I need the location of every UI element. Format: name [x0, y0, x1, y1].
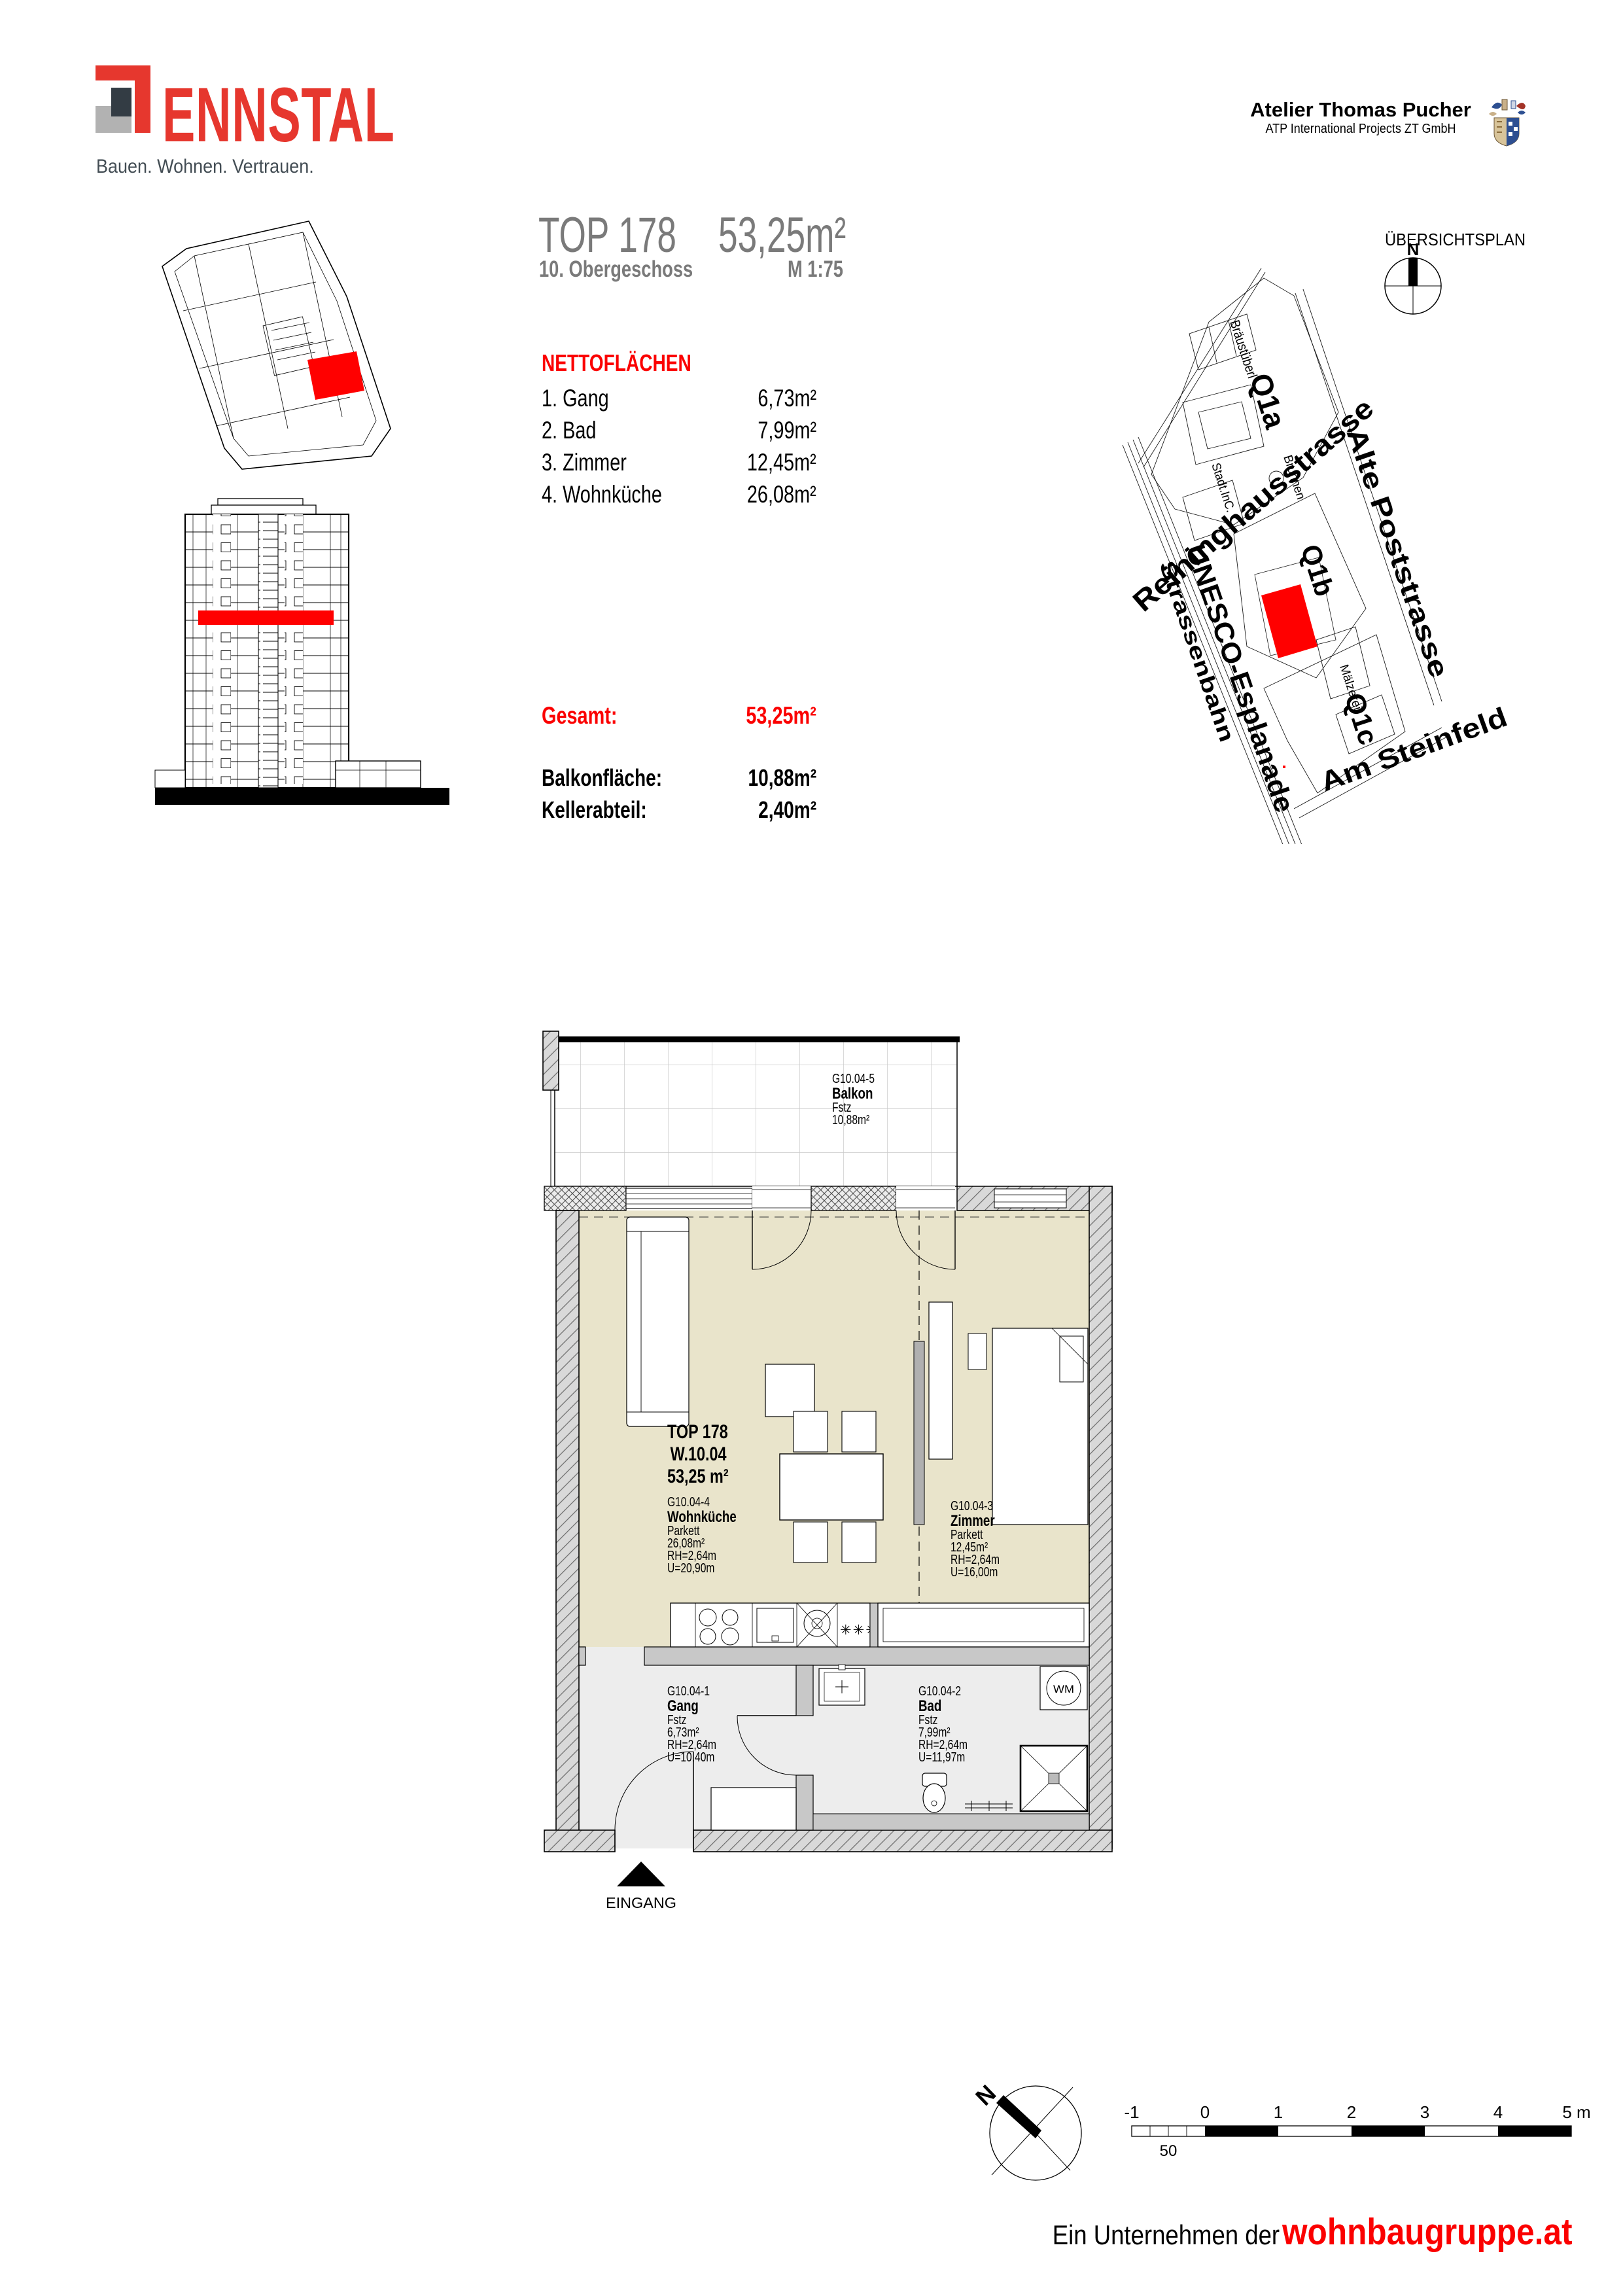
netto-row: 1. Gang 6,73m² [542, 385, 816, 417]
site-plan-drawing: ÜBERSICHTSPLAN N Reininghausstrasse Stra… [1099, 216, 1622, 844]
netto-row: 4. Wohnküche 26,08m² [542, 481, 816, 513]
netto-row-value: 12,45m² [747, 449, 816, 476]
netto-heading: NETTOFLÄCHEN [542, 349, 691, 377]
site-plan-heading: ÜBERSICHTSPLAN [1385, 230, 1526, 249]
netto-row-value: 7,99m² [758, 417, 816, 444]
coffee-table-icon [765, 1364, 814, 1417]
exterior-wall-right [1089, 1186, 1112, 1848]
balcony-deck [555, 1042, 957, 1186]
place-label-braeustueberl: Bräustüberl [1227, 318, 1259, 380]
sofa-icon [627, 1217, 689, 1426]
page-title-floor: 10. Obergeschoss [539, 256, 693, 283]
scale-tick-label: 5 m [1562, 2102, 1590, 2122]
place-label-stadt-inc: Stadt.InC. [1208, 461, 1237, 514]
scale-bar: -1 0 1 2 3 4 5 m 50 [1112, 2084, 1622, 2169]
page-title-scale: M 1:75 [788, 256, 843, 283]
hall-closet-icon [711, 1788, 796, 1830]
footer: Ein Unternehmen der wohnbaugruppe.at [1052, 2210, 1572, 2253]
unit-label: TOP 178 W.10.04 53,25 m² [667, 1421, 729, 1488]
scale-tick-label: 4 [1493, 2102, 1503, 2122]
scale-tick-label: 2 [1347, 2102, 1356, 2122]
scale-tick-label: -1 [1124, 2102, 1139, 2122]
block-label-q1a: Q1a [1243, 369, 1293, 433]
summary-row-label: Balkonfläche: [542, 764, 662, 792]
washing-machine-icon: WM [1040, 1667, 1087, 1710]
entrance-arrow-icon [617, 1862, 665, 1886]
page-title-unit: TOP 178 [538, 207, 676, 264]
netto-row: 2. Bad 7,99m² [542, 417, 816, 449]
floorplan-document-page: ENNSTAL Bauen. Wohnen. Vertrauen. Atelie… [0, 0, 1623, 2296]
scale-tick-label: 0 [1200, 2102, 1210, 2122]
ennstal-logo-icon [96, 65, 153, 141]
room-label-balkon: G10.04-5 Balkon Fstz 10,88m² [832, 1073, 875, 1127]
architect-name: Atelier Thomas Pucher [1243, 98, 1478, 122]
key-plan-highlighted-unit [307, 351, 364, 400]
room-label-gang: G10.04-1 Gang Fstz 6,73m² RH=2,64m U=10,… [667, 1686, 716, 1764]
scale-tick-label: 3 [1420, 2102, 1429, 2122]
entrance-label: EINGANG [606, 1894, 676, 1911]
exterior-wall-left [556, 1210, 579, 1848]
washbasin-icon [819, 1665, 865, 1705]
summary-table: Balkonfläche: 10,88m² Kellerabteil: 2,40… [542, 764, 816, 828]
section-highlighted-floor [198, 610, 334, 625]
room-label-zimmer: G10.04-3 Zimmer Parkett 12,45m² RH=2,64m… [951, 1500, 1000, 1579]
site-plan-highlighted-building [1261, 584, 1318, 658]
netto-row-label: 4. Wohnküche [542, 481, 662, 508]
summary-row-value: 2,40m² [758, 796, 816, 824]
exterior-wall-bottom [693, 1830, 1112, 1852]
summary-row: Balkonfläche: 10,88m² [542, 764, 816, 796]
gesamt-label: Gesamt: [542, 702, 617, 730]
sliding-panel [914, 1341, 924, 1525]
netto-table: 1. Gang 6,73m² 2. Bad 7,99m² 3. Zimmer 1… [542, 385, 816, 513]
key-plan-drawing [134, 213, 442, 474]
architect-crest-icon [1485, 96, 1528, 150]
room-label-bad: G10.04-2 Bad Fstz 7,99m² RH=2,64m U=11,9… [918, 1686, 968, 1764]
netto-row-label: 3. Zimmer [542, 449, 627, 476]
wm-label: WM [1053, 1683, 1074, 1695]
summary-row-value: 10,88m² [748, 764, 816, 792]
section-ground-line [155, 788, 449, 805]
building-section-drawing [144, 484, 458, 824]
gesamt-row: Gesamt: 53,25m² [542, 702, 816, 734]
summary-row-label: Kellerabteil: [542, 796, 647, 824]
street-label-alte-poststrasse: Alte Poststrasse [1340, 424, 1455, 682]
scale-tick-label: 1 [1274, 2102, 1283, 2122]
logo-dark-square [111, 88, 131, 116]
footer-brand-link[interactable]: wohnbaugruppe.at [1282, 2211, 1572, 2253]
interior-wall-horizontal [644, 1647, 1089, 1665]
room-label-wohnkueche: G10.04-4 Wohnküche Parkett 26,08m² RH=2,… [667, 1496, 737, 1575]
architect-firm: ATP International Projects ZT GmbH [1255, 122, 1467, 137]
plan-north-compass-icon: N [973, 2069, 1117, 2213]
netto-row-label: 2. Bad [542, 417, 596, 444]
shower-icon [1021, 1746, 1087, 1811]
floor-plan-drawing: ✳✳✳ [536, 1021, 1125, 1937]
footer-prefix: Ein Unternehmen der [1052, 2219, 1279, 2250]
summary-row: Kellerabteil: 2,40m² [542, 796, 816, 828]
brand-tagline: Bauen. Wohnen. Vertrauen. [96, 156, 314, 178]
interior-wall-vertical [796, 1775, 813, 1830]
netto-row: 3. Zimmer 12,45m² [542, 449, 816, 481]
floor-plan: ✳✳✳ [536, 1021, 1125, 1937]
scale-sub-label: 50 [1160, 2142, 1178, 2160]
page-title-area: 53,25m² [718, 207, 846, 264]
north-label: N [1407, 239, 1420, 259]
plan-north-label: N [973, 2079, 1001, 2111]
bedroom-wardrobe-row [878, 1603, 1089, 1647]
netto-row-value: 6,73m² [758, 385, 816, 412]
wardrobe-icon [929, 1302, 952, 1459]
netto-row-label: 1. Gang [542, 385, 609, 412]
netto-row-value: 26,08m² [747, 481, 816, 508]
toilet-icon [922, 1773, 947, 1812]
brand-wordmark: ENNSTAL [162, 71, 395, 160]
gesamt-value: 53,25m² [746, 702, 816, 730]
